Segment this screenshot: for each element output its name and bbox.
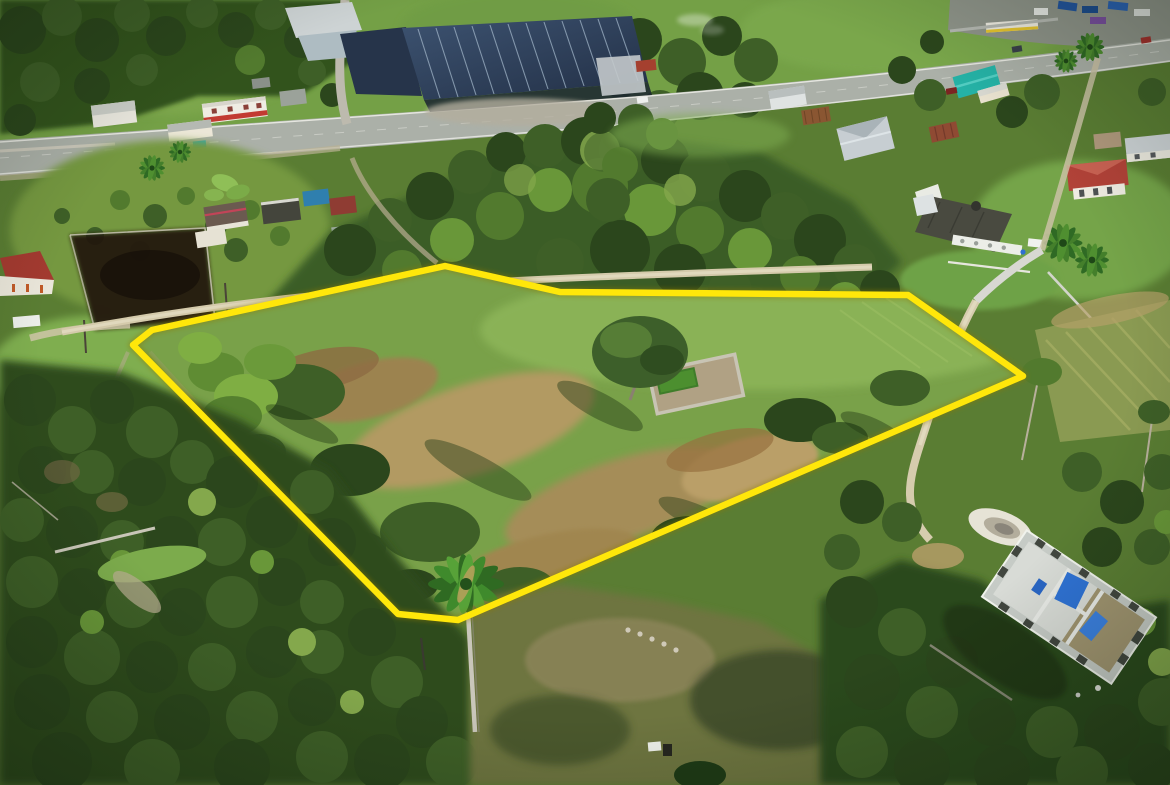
vignette bbox=[0, 0, 1170, 785]
photo-canvas bbox=[0, 0, 1170, 785]
aerial-photo bbox=[0, 0, 1170, 785]
